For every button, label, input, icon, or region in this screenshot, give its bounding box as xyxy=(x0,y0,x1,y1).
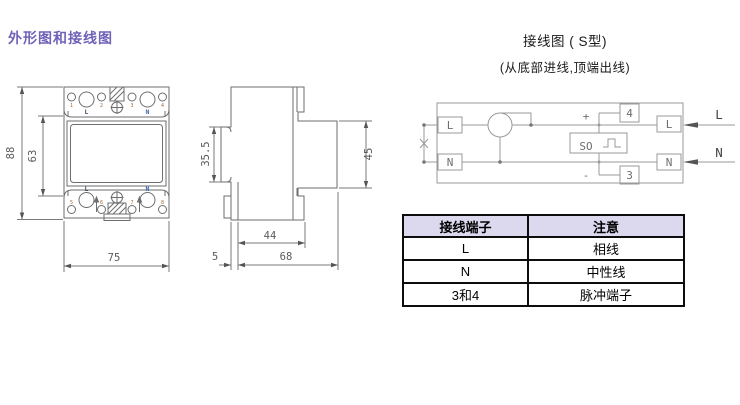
table-row-n: N 中性线 xyxy=(403,260,684,283)
terminal-number-5: 5 xyxy=(70,200,73,206)
wiring-box-l-out: L xyxy=(666,118,673,131)
wiring-subtitle: (从底部进线,顶端出线) xyxy=(425,57,705,76)
wiring-diagram xyxy=(420,103,735,184)
dim-clip-5: 5 xyxy=(212,251,218,263)
cell-terminal: L xyxy=(403,237,528,260)
cell-terminal: 3和4 xyxy=(403,283,528,306)
cell-note: 相线 xyxy=(528,237,684,260)
terminal-number-8: 8 xyxy=(161,200,164,206)
dim-base-44: 44 xyxy=(264,230,277,242)
terminal-label-l-top: L xyxy=(85,108,89,116)
table-row-pulse: 3和4 脉冲端子 xyxy=(403,283,684,306)
cell-note: 脉冲端子 xyxy=(528,283,684,306)
dim-height-88: 88 xyxy=(5,147,17,160)
terminal-number-1: 1 xyxy=(70,103,73,109)
terminal-number-4: 4 xyxy=(161,103,164,109)
page: 外形图和接线图 接线图 ( S型) (从底部进线,顶端出线) xyxy=(0,0,740,405)
dim-front-45: 45 xyxy=(363,148,375,161)
terminal-number-3: 3 xyxy=(130,103,133,109)
table-row-l: L 相线 xyxy=(403,237,684,260)
cell-terminal: N xyxy=(403,260,528,283)
wiring-line-n-label: N xyxy=(715,145,723,160)
wiring-line-l-label: L xyxy=(715,107,723,122)
terminal-label-n-top: N xyxy=(146,108,150,116)
terminal-number-7: 7 xyxy=(130,200,133,206)
terminal-label-n-bottom: N xyxy=(146,185,150,193)
terminal-table: 接线端子 注意 L 相线 N 中性线 3和4 脉冲端子 xyxy=(402,214,685,307)
cell-note: 中性线 xyxy=(528,260,684,283)
wiring-terminal-3: 3 xyxy=(626,169,633,182)
dim-depth-68: 68 xyxy=(280,251,293,263)
table-header-terminal: 接线端子 xyxy=(403,215,528,237)
wiring-plus: + xyxy=(583,110,590,123)
dim-width-75: 75 xyxy=(108,252,121,264)
wiring-schematic: L N L N 4 3 SO + - L N xyxy=(410,96,740,194)
table-header-note: 注意 xyxy=(528,215,684,237)
wiring-box-l-in: L xyxy=(447,119,454,132)
wiring-box-n-out: N xyxy=(666,156,673,169)
terminal-number-2: 2 xyxy=(100,103,103,109)
side-view-drawing xyxy=(209,87,372,270)
wiring-title: 接线图 ( S型) xyxy=(425,30,705,50)
wiring-minus: - xyxy=(583,169,590,182)
table-header-row: 接线端子 注意 xyxy=(403,215,684,237)
page-title: 外形图和接线图 xyxy=(8,28,113,48)
terminal-number-6: 6 xyxy=(100,200,103,206)
terminal-label-l-bottom: L xyxy=(85,185,89,193)
wiring-so-label: SO xyxy=(579,140,592,153)
outline-drawing: 1 2 3 4 L N L N 5 6 7 8 88 63 75 xyxy=(0,80,400,280)
wiring-box-n-in: N xyxy=(447,156,454,169)
dim-window-63: 63 xyxy=(27,150,39,163)
wiring-terminal-4: 4 xyxy=(626,107,633,120)
dim-rail-35-5: 35.5 xyxy=(200,141,212,166)
wiring-diagram-header: 接线图 ( S型) (从底部进线,顶端出线) xyxy=(425,30,705,76)
